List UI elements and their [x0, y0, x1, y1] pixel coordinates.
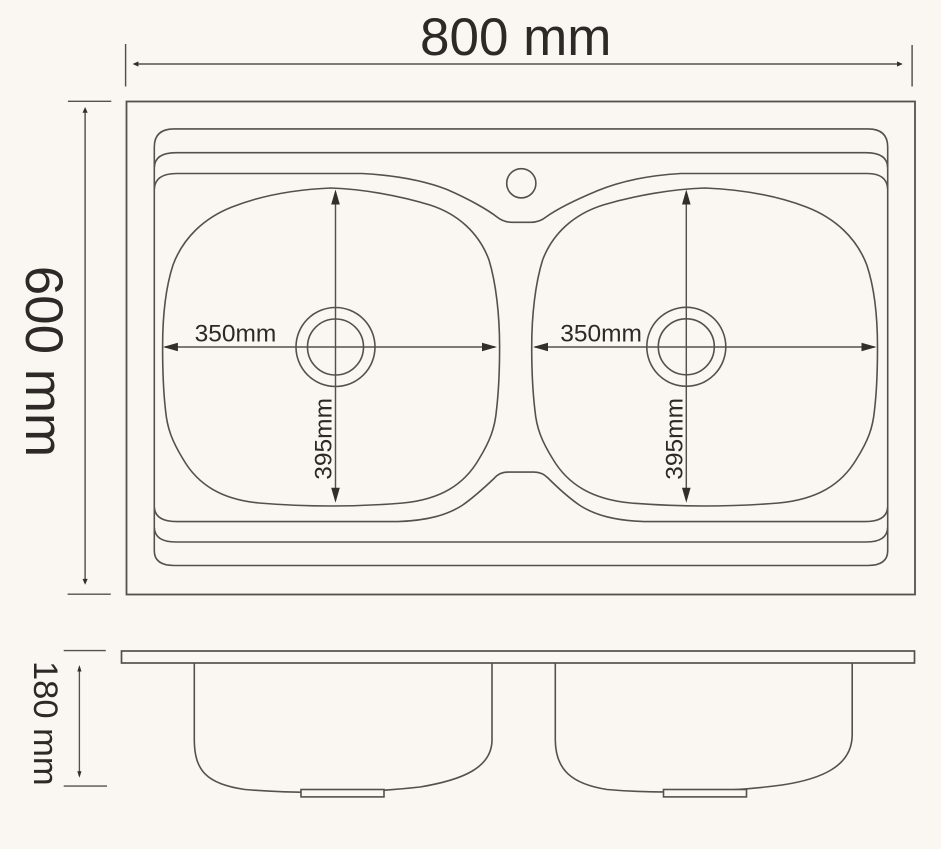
svg-text:350mm: 350mm — [560, 320, 642, 347]
svg-text:800 mm: 800 mm — [420, 8, 611, 67]
svg-text:350mm: 350mm — [195, 320, 277, 347]
svg-text:395mm: 395mm — [661, 398, 688, 480]
svg-text:395mm: 395mm — [311, 398, 338, 480]
svg-text:600 mm: 600 mm — [14, 266, 73, 457]
svg-text:180 mm: 180 mm — [26, 661, 64, 786]
